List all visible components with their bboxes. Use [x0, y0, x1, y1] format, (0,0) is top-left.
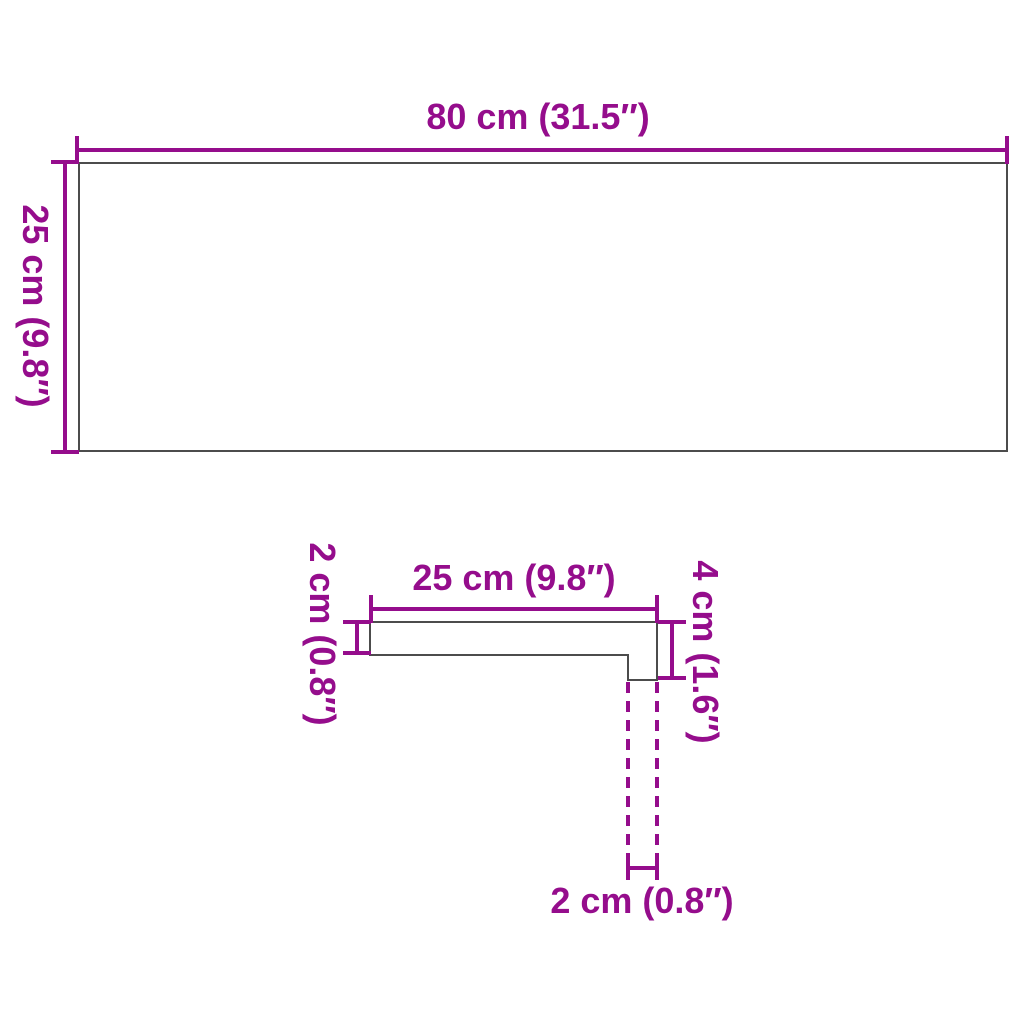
board-width-dimension-line — [77, 148, 1007, 152]
board-height-cap-top — [51, 160, 79, 164]
board-height-cap-bottom — [51, 450, 79, 454]
profile-nose-height-cap-top — [658, 620, 686, 624]
profile-thickness-cap-bottom — [343, 651, 371, 655]
profile-nose-width-label: 2 cm (0.8″) — [550, 883, 733, 919]
profile-nose-width-dimension-line — [626, 866, 659, 870]
profile-nose-height-dimension-line — [670, 622, 674, 680]
dimension-drawing: 80 cm (31.5″) 25 cm (9.8″) 25 cm (9.8″) … — [0, 0, 1024, 1024]
profile-depth-label: 25 cm (9.8″) — [412, 560, 615, 596]
board-outline — [78, 162, 1008, 452]
profile-nose-projection-line-left — [626, 682, 630, 856]
board-height-dimension-line — [63, 162, 67, 452]
profile-nose-height-cap-bottom — [658, 676, 686, 680]
profile-depth-cap-left — [369, 595, 373, 623]
profile-outline — [360, 612, 670, 692]
profile-thickness-label: 2 cm (0.8″) — [304, 542, 340, 725]
board-width-cap-right — [1005, 136, 1009, 164]
profile-depth-cap-right — [655, 595, 659, 623]
board-height-label: 25 cm (9.8″) — [17, 204, 53, 407]
profile-depth-dimension-line — [371, 607, 657, 611]
profile-thickness-cap-top — [343, 620, 371, 624]
board-width-label: 80 cm (31.5″) — [426, 99, 649, 135]
profile-outline-path — [370, 622, 657, 680]
profile-nose-height-label: 4 cm (1.6″) — [687, 560, 723, 743]
profile-nose-projection-line-right — [655, 682, 659, 856]
